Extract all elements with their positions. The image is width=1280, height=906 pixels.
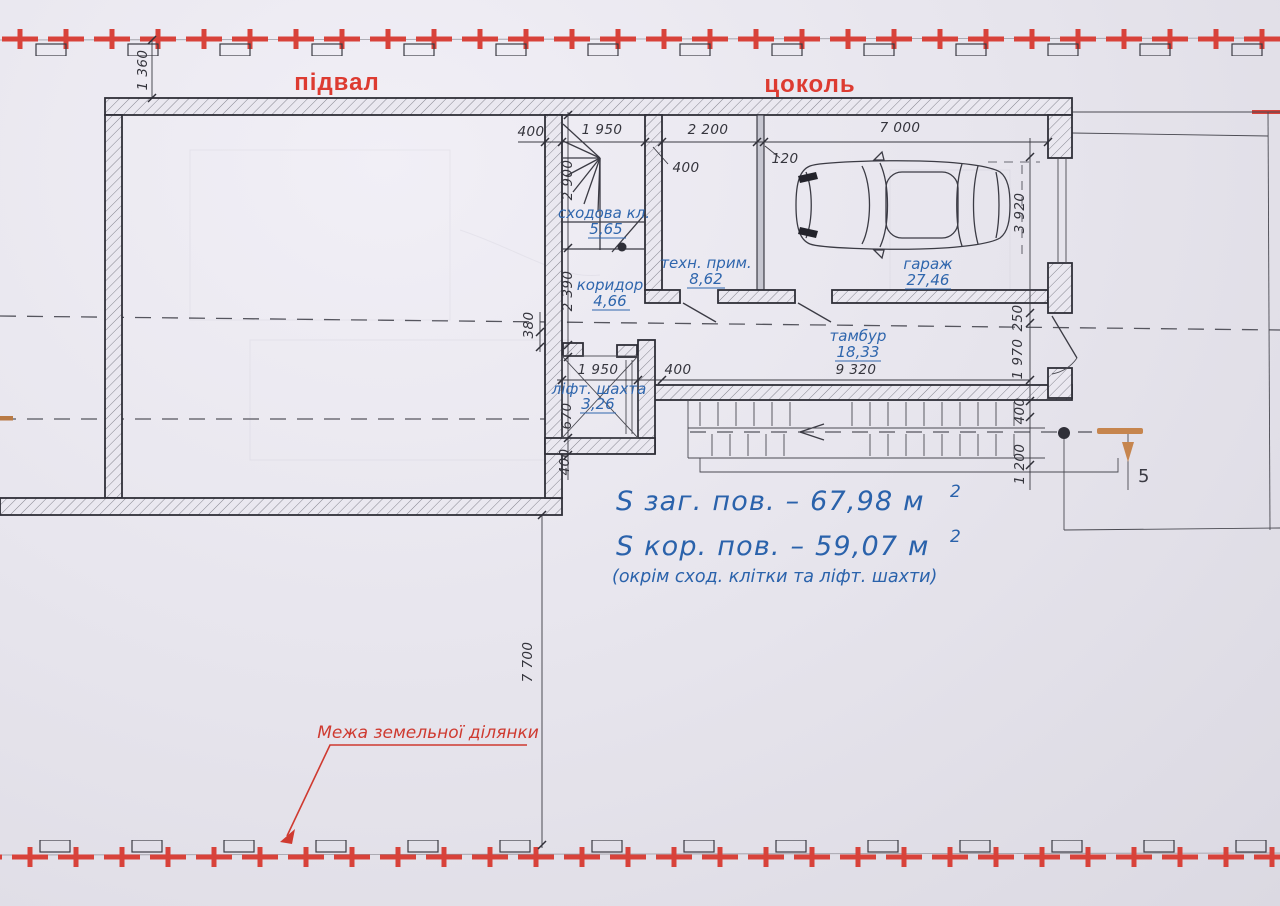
- ramp-step-ticks: [700, 402, 1014, 456]
- dim-lift-width: 1 950: [578, 362, 619, 378]
- room-tech-area: 8,62: [689, 270, 722, 288]
- dim-bottom-wall: 400: [557, 449, 573, 476]
- site-lines-right: [1064, 112, 1280, 530]
- dim-partition: 120: [772, 151, 799, 167]
- dim-corridor-depth: 2 390: [560, 271, 576, 312]
- label-basement: підвал: [294, 69, 379, 96]
- room-corridor-area: 4,66: [593, 292, 626, 310]
- summary-note: (окрім сход. клітки та ліфт. шахти): [612, 567, 937, 587]
- area-summary: S заг. пов. – 67,98 м 2 S кор. пов. – 59…: [612, 482, 961, 587]
- summary-total-sup: 2: [950, 482, 961, 502]
- section-marker-5: 5: [1097, 428, 1149, 490]
- dim-top-offset: 1 360: [135, 50, 151, 91]
- site-boundary-label: Межа земельної ділянки: [317, 723, 539, 743]
- summary-usable-sup: 2: [950, 527, 961, 547]
- dim-1970: 1 970: [1010, 339, 1026, 380]
- section-marker-label: 5: [1138, 466, 1149, 487]
- floor-plan-photo: 5 1 360 400: [0, 0, 1280, 906]
- dim-garage-width: 7 000: [880, 120, 921, 136]
- dim-tech-width: 2 200: [688, 122, 729, 138]
- garage-gate: [1058, 158, 1066, 263]
- dimension-texts: 1 360 400 1 950 2 200 7 000 400 120 2 90…: [135, 50, 1028, 683]
- floor-plan-svg: 5 1 360 400: [0, 0, 1280, 906]
- dim-ramp-depth: 1 200: [1012, 444, 1028, 485]
- dim-front-setback: 7 700: [520, 642, 536, 683]
- dim-stair-wall: 400: [518, 124, 545, 140]
- ramp-axis-dot: [1058, 427, 1070, 439]
- dim-250: 250: [1010, 305, 1026, 332]
- dim-ramp-offset: 400: [1012, 398, 1028, 425]
- ramp-stairs: [688, 400, 1118, 472]
- dim-niche: 380: [521, 312, 537, 339]
- room-garage-area: 27,46: [907, 271, 950, 289]
- room-lift-area: 3,26: [581, 395, 614, 413]
- car-top-view: [796, 152, 1040, 258]
- room-tambour-area: 18,33: [837, 343, 880, 361]
- dim-lift-depth: 670: [559, 403, 575, 430]
- site-boundary-callout: Межа земельної ділянки: [280, 723, 539, 844]
- room-stair-area: 5,65: [589, 220, 622, 238]
- summary-total: S заг. пов. – 67,98 м: [616, 486, 925, 517]
- dim-stair-depth: 2 900: [560, 160, 576, 201]
- dim-tech-wall: 400: [673, 160, 700, 176]
- site-boundary-top: [0, 26, 1280, 56]
- dim-garage-depth: 3 920: [1012, 193, 1028, 234]
- site-boundary-bottom: [0, 840, 1280, 870]
- summary-usable: S кор. пов. – 59,07 м: [616, 531, 930, 562]
- marker-bar: [1097, 428, 1143, 434]
- label-ground-floor: цоколь: [764, 71, 855, 98]
- dim-tambour-length: 9 320: [836, 362, 877, 378]
- dim-stair-width: 1 950: [582, 122, 623, 138]
- stair-start-dot: [618, 243, 627, 252]
- marker-arrow-icon: [1122, 442, 1134, 462]
- dim-lift-wall: 400: [665, 362, 692, 378]
